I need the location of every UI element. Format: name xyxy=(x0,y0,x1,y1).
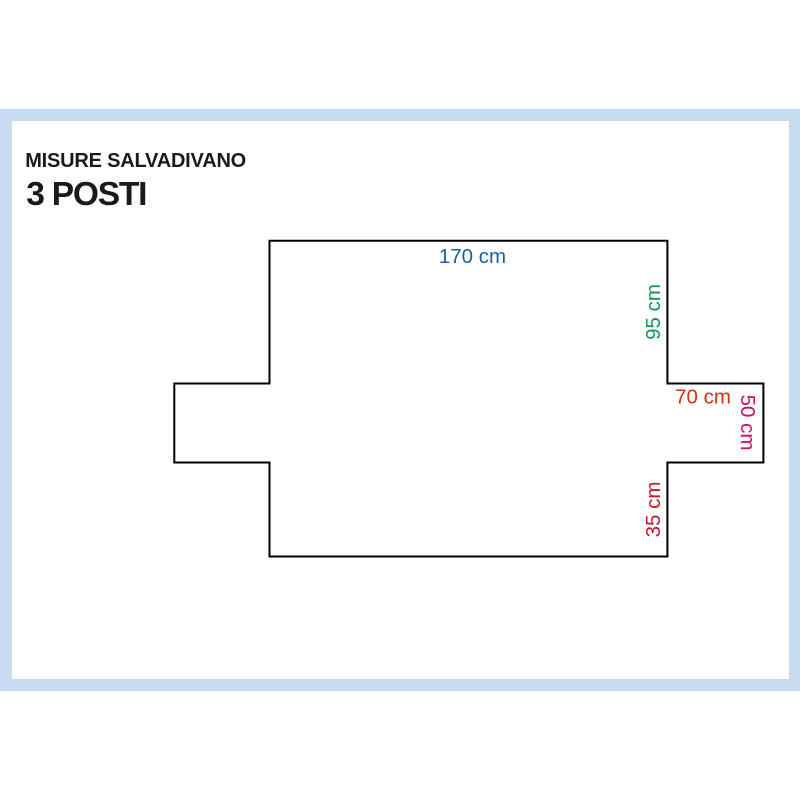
svg-text:35 cm: 35 cm xyxy=(642,482,665,538)
svg-text:170 cm: 170 cm xyxy=(439,245,506,268)
svg-text:95 cm: 95 cm xyxy=(642,284,665,340)
svg-text:50 cm: 50 cm xyxy=(736,395,759,451)
svg-text:70 cm: 70 cm xyxy=(675,385,731,408)
